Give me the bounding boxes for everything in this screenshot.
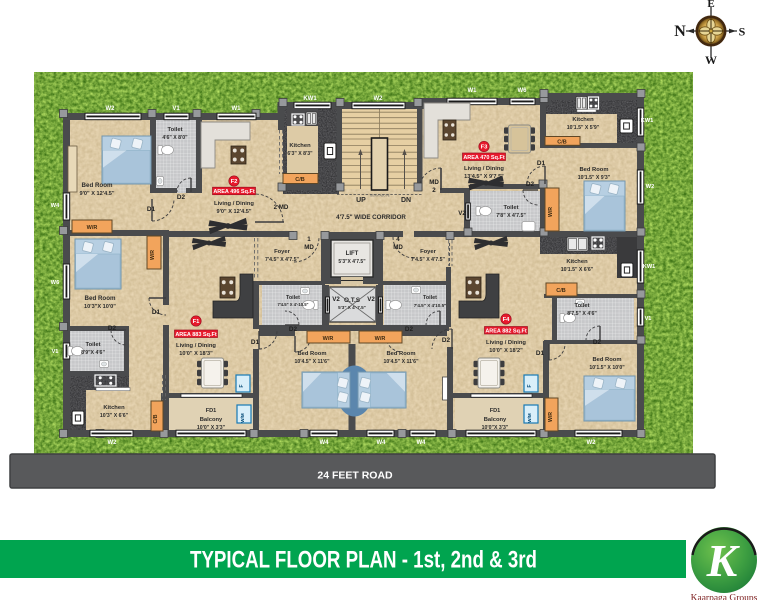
svg-text:C/B: C/B bbox=[556, 288, 566, 294]
svg-text:24 FEET ROAD: 24 FEET ROAD bbox=[317, 470, 393, 482]
svg-text:AREA 882 Sq.Ft: AREA 882 Sq.Ft bbox=[485, 328, 527, 334]
svg-text:10'3"X 10'0": 10'3"X 10'0" bbox=[84, 304, 116, 310]
svg-text:D1: D1 bbox=[152, 309, 161, 316]
svg-text:Foyer: Foyer bbox=[274, 249, 291, 255]
svg-text:BEAM ABOVE: BEAM ABOVE bbox=[370, 193, 390, 197]
svg-text:10'1.5" X 5'9": 10'1.5" X 5'9" bbox=[567, 125, 600, 131]
svg-text:LIFT: LIFT bbox=[346, 251, 359, 257]
svg-text:V1: V1 bbox=[645, 316, 652, 322]
svg-text:D2: D2 bbox=[442, 337, 451, 344]
svg-text:Toilet: Toilet bbox=[286, 295, 300, 301]
svg-text:V1: V1 bbox=[172, 106, 180, 112]
svg-text:4: 4 bbox=[396, 236, 400, 243]
svg-text:Kitchen: Kitchen bbox=[289, 143, 311, 149]
svg-text:Kitchen: Kitchen bbox=[572, 117, 594, 123]
svg-text:D1: D1 bbox=[147, 206, 156, 213]
svg-text:Toilet: Toilet bbox=[503, 205, 518, 211]
svg-text:Living / Dining: Living / Dining bbox=[176, 343, 216, 349]
svg-text:W2: W2 bbox=[108, 440, 118, 446]
svg-text:W/R: W/R bbox=[375, 336, 386, 342]
svg-text:2: 2 bbox=[432, 187, 436, 194]
svg-text:10'1.5" X 6'6": 10'1.5" X 6'6" bbox=[561, 267, 594, 273]
svg-text:W/R: W/R bbox=[150, 250, 156, 260]
svg-text:5'3" X 4'-7.5": 5'3" X 4'-7.5" bbox=[338, 305, 366, 310]
svg-text:KW1: KW1 bbox=[303, 96, 317, 102]
svg-text:Bed Room: Bed Room bbox=[85, 295, 116, 302]
svg-text:W/R: W/R bbox=[323, 336, 334, 342]
svg-text:W/R: W/R bbox=[548, 207, 554, 217]
svg-text:10'1.5" X 10'0": 10'1.5" X 10'0" bbox=[589, 365, 625, 371]
svg-text:6'3" X 8'3": 6'3" X 8'3" bbox=[287, 151, 313, 157]
svg-text:Balcony: Balcony bbox=[484, 417, 507, 423]
svg-text:Living / Dining: Living / Dining bbox=[214, 201, 254, 207]
svg-text:D2: D2 bbox=[108, 325, 117, 332]
svg-text:N: N bbox=[674, 23, 686, 40]
svg-text:10'1.5" X 9'3": 10'1.5" X 9'3" bbox=[578, 175, 611, 181]
svg-text:Toilet: Toilet bbox=[167, 127, 182, 133]
svg-text:W1: W1 bbox=[232, 106, 242, 112]
svg-text:D2: D2 bbox=[289, 326, 298, 333]
svg-text:D2: D2 bbox=[593, 339, 602, 346]
svg-text:V2: V2 bbox=[458, 210, 466, 217]
svg-text:7'4.5" X 4'7.5": 7'4.5" X 4'7.5" bbox=[411, 257, 445, 263]
svg-text:AREA 496 Sq.Ft: AREA 496 Sq.Ft bbox=[213, 189, 255, 195]
svg-text:W: W bbox=[705, 53, 717, 67]
svg-text:9'0" X 12'4.5": 9'0" X 12'4.5" bbox=[79, 191, 114, 197]
svg-text:W2: W2 bbox=[587, 440, 597, 446]
svg-text:KW1: KW1 bbox=[641, 118, 653, 124]
svg-text:D1: D1 bbox=[536, 350, 545, 357]
svg-text:F2: F2 bbox=[231, 179, 238, 185]
svg-text:DN: DN bbox=[401, 197, 411, 204]
svg-text:FD1: FD1 bbox=[490, 408, 501, 414]
svg-text:V1: V1 bbox=[52, 349, 59, 355]
svg-text:W/M: W/M bbox=[527, 413, 532, 423]
svg-text:C/B: C/B bbox=[153, 414, 159, 423]
svg-text:F3: F3 bbox=[481, 145, 489, 151]
svg-text:D2: D2 bbox=[405, 326, 414, 333]
svg-text:Foyer: Foyer bbox=[420, 249, 437, 255]
svg-text:10'4.5" X 11'6": 10'4.5" X 11'6" bbox=[294, 359, 330, 365]
svg-text:W4: W4 bbox=[320, 440, 330, 446]
svg-text:5'3"X 4'7.5": 5'3"X 4'7.5" bbox=[338, 259, 366, 265]
svg-text:Toilet: Toilet bbox=[574, 303, 589, 309]
svg-text:Toilet: Toilet bbox=[423, 295, 437, 301]
svg-text:10'0" X 3'3": 10'0" X 3'3" bbox=[197, 425, 226, 431]
svg-text:Bed Room: Bed Room bbox=[298, 351, 327, 357]
svg-text:7'8" X 4'7.5": 7'8" X 4'7.5" bbox=[496, 213, 526, 219]
svg-text:W4: W4 bbox=[417, 440, 427, 446]
svg-text:Bed Room: Bed Room bbox=[82, 182, 113, 189]
svg-text:MD: MD bbox=[304, 244, 314, 251]
svg-text:Kitchen: Kitchen bbox=[566, 259, 588, 265]
svg-text:AREA 883 Sq.Ft: AREA 883 Sq.Ft bbox=[175, 332, 217, 338]
svg-text:V2: V2 bbox=[367, 296, 375, 303]
svg-text:10'0" X 18'3": 10'0" X 18'3" bbox=[179, 351, 213, 357]
svg-text:10'4.5" X 11'6": 10'4.5" X 11'6" bbox=[383, 359, 419, 365]
svg-text:4'6" X 8'0": 4'6" X 8'0" bbox=[162, 135, 188, 141]
svg-text:C/B: C/B bbox=[295, 177, 305, 183]
svg-text:MD: MD bbox=[429, 179, 439, 186]
svg-text:F: F bbox=[527, 384, 533, 387]
svg-text:W/R: W/R bbox=[548, 412, 554, 422]
svg-text:MD: MD bbox=[393, 244, 403, 251]
svg-text:W/M: W/M bbox=[240, 413, 245, 423]
svg-text:FD1: FD1 bbox=[206, 408, 217, 414]
svg-text:D2: D2 bbox=[177, 194, 186, 201]
svg-text:Bed Room: Bed Room bbox=[387, 351, 416, 357]
svg-text:13'4.5" X 9'7.5": 13'4.5" X 9'7.5" bbox=[464, 174, 504, 180]
svg-text:Bed Room: Bed Room bbox=[580, 167, 609, 173]
svg-text:4'7.5" WIDE CORRIDOR: 4'7.5" WIDE CORRIDOR bbox=[336, 214, 406, 221]
svg-text:8'7.5" X 4'6": 8'7.5" X 4'6" bbox=[567, 311, 597, 317]
svg-text:UP: UP bbox=[356, 197, 366, 204]
svg-text:W6: W6 bbox=[51, 280, 59, 286]
svg-text:Living / Dining: Living / Dining bbox=[464, 166, 504, 172]
svg-text:W6: W6 bbox=[518, 88, 528, 94]
svg-text:Kaarpaga Groups: Kaarpaga Groups bbox=[691, 594, 758, 601]
svg-text:C/B: C/B bbox=[557, 139, 567, 145]
svg-text:10'0"X 3'3": 10'0"X 3'3" bbox=[482, 425, 509, 431]
svg-text:W4: W4 bbox=[51, 203, 60, 209]
svg-text:F: F bbox=[239, 384, 245, 387]
svg-text:K: K bbox=[706, 535, 741, 586]
svg-text:8'9"X 4'6": 8'9"X 4'6" bbox=[81, 350, 105, 356]
svg-text:W1: W1 bbox=[468, 88, 478, 94]
svg-text:D1: D1 bbox=[251, 339, 260, 346]
svg-text:E: E bbox=[707, 0, 714, 10]
svg-text:Balcony: Balcony bbox=[200, 417, 223, 423]
svg-text:7'4.5" X 4'-10.5": 7'4.5" X 4'-10.5" bbox=[277, 302, 308, 307]
svg-text:F1: F1 bbox=[193, 319, 201, 325]
svg-text:AREA 470 Sq.Ft: AREA 470 Sq.Ft bbox=[463, 155, 505, 161]
svg-text:W4: W4 bbox=[377, 440, 387, 446]
svg-text:10'3" X 6'6": 10'3" X 6'6" bbox=[100, 413, 129, 419]
svg-text:V2: V2 bbox=[332, 296, 340, 303]
svg-text:2 MD: 2 MD bbox=[274, 204, 289, 211]
svg-text:D2: D2 bbox=[526, 181, 535, 188]
svg-text:7'4.5" X 4'10.5": 7'4.5" X 4'10.5" bbox=[414, 303, 447, 308]
svg-text:S: S bbox=[739, 25, 746, 39]
svg-text:W2: W2 bbox=[646, 184, 654, 190]
svg-text:1: 1 bbox=[307, 236, 311, 243]
svg-text:KW1: KW1 bbox=[643, 264, 655, 270]
svg-text:Kitchen: Kitchen bbox=[103, 405, 125, 411]
svg-text:W2: W2 bbox=[374, 96, 384, 102]
svg-text:10'0" X 18'2": 10'0" X 18'2" bbox=[489, 348, 523, 354]
svg-text:Toilet: Toilet bbox=[85, 342, 100, 348]
svg-text:F4: F4 bbox=[503, 317, 511, 323]
svg-text:O.T.S: O.T.S bbox=[344, 297, 361, 304]
svg-text:Bed Room: Bed Room bbox=[593, 357, 622, 363]
svg-text:D1: D1 bbox=[537, 160, 546, 167]
svg-text:Living / Dining: Living / Dining bbox=[486, 340, 526, 346]
svg-text:TYPICAL FLOOR PLAN - 1st, 2nd: TYPICAL FLOOR PLAN - 1st, 2nd & 3rd bbox=[190, 546, 537, 573]
svg-text:7'4.5" X 4'7.5": 7'4.5" X 4'7.5" bbox=[265, 257, 299, 263]
svg-text:W/R: W/R bbox=[87, 225, 98, 231]
svg-text:9'0" X 12'4.5": 9'0" X 12'4.5" bbox=[216, 209, 251, 215]
svg-text:W2: W2 bbox=[106, 106, 116, 112]
